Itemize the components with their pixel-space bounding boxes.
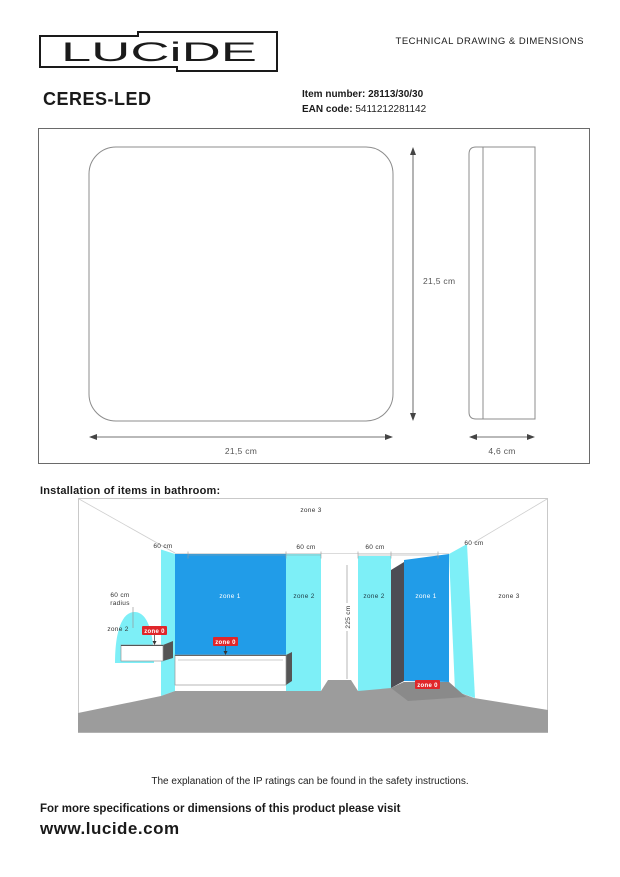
bathroom-section-title: Installation of items in bathroom: bbox=[40, 485, 220, 497]
zone2-label-left: zone 2 bbox=[293, 593, 314, 600]
side-view-outline bbox=[469, 147, 535, 419]
zone0-badge-shower: zone 0 bbox=[415, 680, 440, 689]
shower-panel bbox=[391, 562, 404, 688]
height-dimension-line bbox=[410, 147, 416, 421]
height-dimension-label: 21,5 cm bbox=[423, 276, 455, 286]
room-height-label: 225 cm bbox=[345, 605, 352, 628]
ean-row: EAN code: 5411212281142 bbox=[302, 102, 426, 117]
svg-text:zone 0: zone 0 bbox=[144, 629, 165, 635]
sixty-cm-label-1: 60 cm bbox=[153, 543, 172, 550]
radius-label-line1: 60 cm bbox=[110, 592, 129, 599]
zone2-label-right: zone 2 bbox=[363, 593, 384, 600]
doc-title: TECHNICAL DRAWING & DIMENSIONS bbox=[396, 36, 584, 47]
product-identifiers: Item number: 28113/30/30 EAN code: 54112… bbox=[302, 87, 426, 117]
svg-text:zone 0: zone 0 bbox=[215, 640, 236, 646]
item-number-value: 28113/30/30 bbox=[368, 89, 423, 100]
product-name: CERES-LED bbox=[43, 89, 152, 110]
logo-wordmark: LUCiDE bbox=[61, 37, 257, 67]
technical-drawing-panel: 21,5 cm 21,5 cm 4,6 cm bbox=[38, 128, 590, 464]
width-dimension-line bbox=[89, 434, 393, 440]
sixty-cm-label-3: 60 cm bbox=[365, 544, 384, 551]
ean-value: 5411212281142 bbox=[355, 104, 426, 115]
technical-drawing: 21,5 cm 21,5 cm 4,6 cm bbox=[39, 129, 589, 463]
ip-classifications-legend: IP classifications zone 0 zone 1 minimum… bbox=[0, 733, 620, 777]
depth-dimension-label: 4,6 cm bbox=[488, 446, 515, 456]
sixty-cm-label-4: 60 cm bbox=[464, 540, 483, 547]
radius-label-line2: radius bbox=[110, 600, 130, 607]
bathtub bbox=[175, 652, 292, 685]
zone3-ceiling-label: zone 3 bbox=[300, 507, 321, 514]
website-text: www.lucide.com bbox=[40, 819, 180, 839]
zone2-strip-right-room bbox=[358, 556, 391, 691]
zone3-wall-label: zone 3 bbox=[498, 593, 519, 600]
sixty-cm-label-2: 60 cm bbox=[296, 544, 315, 551]
front-view-outline bbox=[89, 147, 393, 421]
lucide-logo: LUCiDE bbox=[39, 28, 279, 76]
spec-sheet-page: LUCiDE TECHNICAL DRAWING & DIMENSIONS CE… bbox=[0, 0, 620, 877]
width-dimension-label: 21,5 cm bbox=[225, 446, 257, 456]
zone1-label-right: zone 1 bbox=[415, 593, 436, 600]
item-number-label: Item number: bbox=[302, 89, 365, 100]
zone2-dome-label: zone 2 bbox=[107, 626, 128, 633]
zone1-label-left: zone 1 bbox=[219, 593, 240, 600]
zone1-shower-area bbox=[404, 554, 449, 682]
zone2-left-corner-strip bbox=[161, 550, 175, 697]
ean-label: EAN code: bbox=[302, 104, 353, 115]
depth-dimension-line bbox=[469, 434, 535, 440]
footer-text: For more specifications or dimensions of… bbox=[40, 803, 400, 815]
svg-text:zone 0: zone 0 bbox=[417, 683, 438, 689]
bathroom-zones-diagram: 225 cm 60 cm radius 60 cm 60 cm bbox=[78, 498, 548, 733]
item-number-row: Item number: 28113/30/30 bbox=[302, 87, 426, 102]
ip-ratings-note: The explanation of the IP ratings can be… bbox=[0, 776, 620, 787]
